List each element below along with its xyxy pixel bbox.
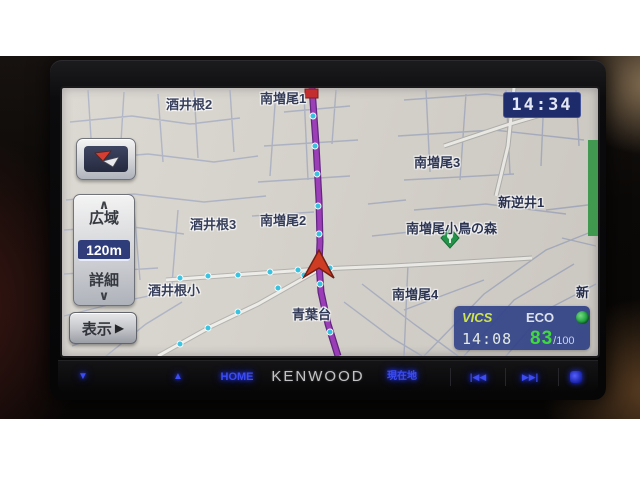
play-arrow-icon: ▶ [115,321,124,335]
zoom-out-label: 広域 [74,210,134,228]
map-label: 南増尾3 [414,152,460,171]
zoom-in-button[interactable]: 詳細 ∨ [74,272,134,301]
map-label: 南増尾4 [392,284,438,303]
eco-score-value: 83 [530,328,553,349]
open-panel-button[interactable]: ▲ [173,361,183,393]
close-panel-button[interactable]: ▼ [78,361,88,393]
kenwood-logo: KENWOOD [271,361,364,393]
zoom-panel: ∧ 広域 120m 詳細 ∨ [73,194,135,306]
display-button[interactable]: 表示 ▶ [69,312,137,344]
head-unit: 酒井根2南増尾1南増尾3新逆井1酒井根3南増尾2南増尾小鳥の森酒井根小青葉台南増… [50,60,606,400]
track-next-button[interactable]: ▶▶| [522,361,538,393]
map-label: 青葉台 [292,304,331,323]
traffic-incident-icon [305,89,318,98]
compass-button[interactable] [76,138,136,180]
map-label: 酒井根3 [190,214,236,233]
vics-label: VICS [458,310,520,325]
eco-score-denominator: /100 [553,335,574,347]
globe-icon [576,311,589,324]
hardware-button-bar: ▼ ▲ HOME KENWOOD 現在地 |◀◀ ▶▶| [58,360,598,393]
map-label: 南増尾1 [260,88,306,107]
heading-arrow-icon [89,149,123,169]
clock-display: 14:34 [503,92,581,118]
open-close-icon[interactable] [570,371,582,383]
compass-well [84,146,128,172]
map-label: 新 [576,282,589,301]
map-label: 南増尾小鳥の森 [406,218,497,237]
display-button-label: 表示 [82,318,112,339]
map-label: 南増尾2 [260,210,306,229]
divider [505,368,506,386]
dashboard-photo: 酒井根2南増尾1南増尾3新逆井1酒井根3南増尾2南増尾小鳥の森酒井根小青葉台南増… [0,56,640,419]
track-prev-button[interactable]: |◀◀ [470,361,486,393]
map-label: 酒井根小 [148,280,200,299]
map-label: 酒井根2 [166,94,212,113]
park-area [588,140,598,236]
map-scale-display: 120m [78,240,130,261]
chevron-up-icon: ∧ [74,199,134,210]
vics-eco-panel[interactable]: VICS ECO 14:08 83/100 [454,306,590,350]
home-button[interactable]: HOME [221,361,254,393]
eco-label: ECO [526,310,554,325]
eco-score: 83/100 [520,328,594,350]
nav-map-screen[interactable]: 酒井根2南増尾1南増尾3新逆井1酒井根3南増尾2南増尾小鳥の森酒井根小青葉台南増… [62,88,598,356]
map-label: 新逆井1 [498,192,544,211]
divider [450,368,451,386]
chevron-down-icon: ∨ [74,290,134,301]
eco-header: ECO [520,310,594,325]
vics-time: 14:08 [458,330,520,348]
zoom-out-button[interactable]: ∧ 広域 [74,199,134,228]
current-location-button[interactable]: 現在地 [387,361,417,393]
divider [558,368,559,386]
